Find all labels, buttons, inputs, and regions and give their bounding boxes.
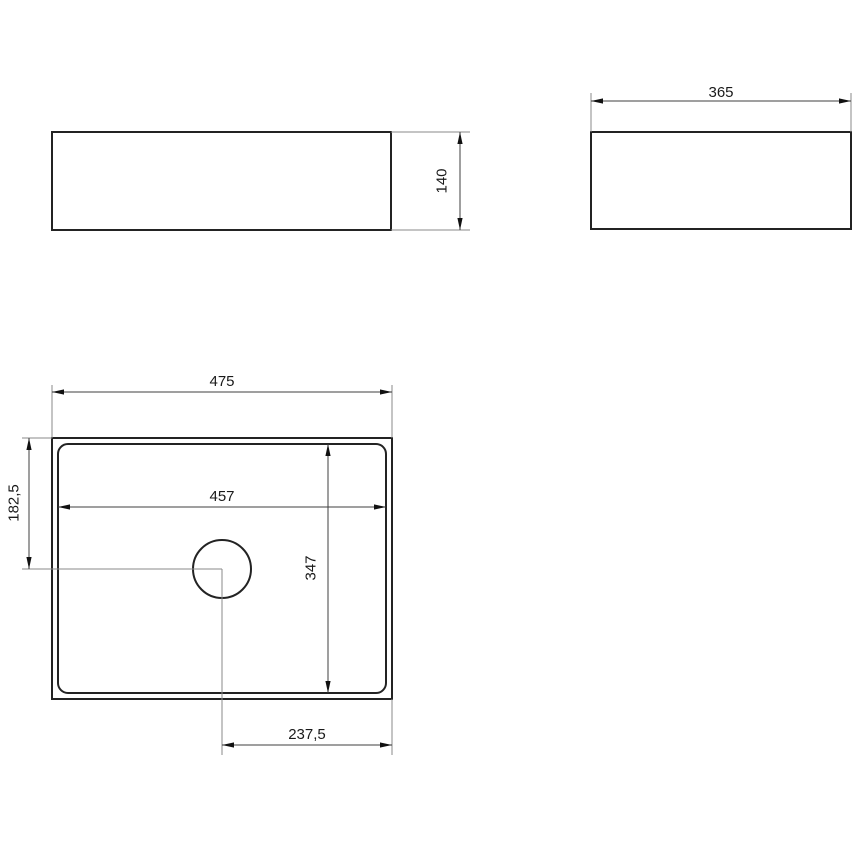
dimension-label-drain-offset-right: 237,5 <box>288 726 326 743</box>
side-view: 365 <box>591 84 851 229</box>
dimension-side-width: 365 <box>591 84 851 132</box>
drawing-sheet: 140 365 475 <box>0 0 868 868</box>
dimension-drain-offset-left: 182,5 <box>6 438 53 569</box>
dimension-drain-offset-right: 237,5 <box>222 699 392 755</box>
dimension-label-drain-offset-left: 182,5 <box>6 484 23 522</box>
dimension-label-outer-width: 475 <box>209 373 234 390</box>
technical-drawing: 140 365 475 <box>0 0 868 868</box>
front-view-body <box>52 132 391 230</box>
dimension-label-inner-depth: 347 <box>303 555 320 580</box>
dimension-front-height: 140 <box>391 132 470 230</box>
dimension-label-side-width: 365 <box>708 84 733 101</box>
front-view: 140 <box>52 132 470 230</box>
top-view: 475 457 182,5 347 237,5 <box>6 373 393 755</box>
dimension-label-inner-width: 457 <box>209 488 234 505</box>
dimension-top-outer-width: 475 <box>52 373 392 438</box>
dimension-label-front-height: 140 <box>434 168 451 193</box>
side-view-body <box>591 132 851 229</box>
